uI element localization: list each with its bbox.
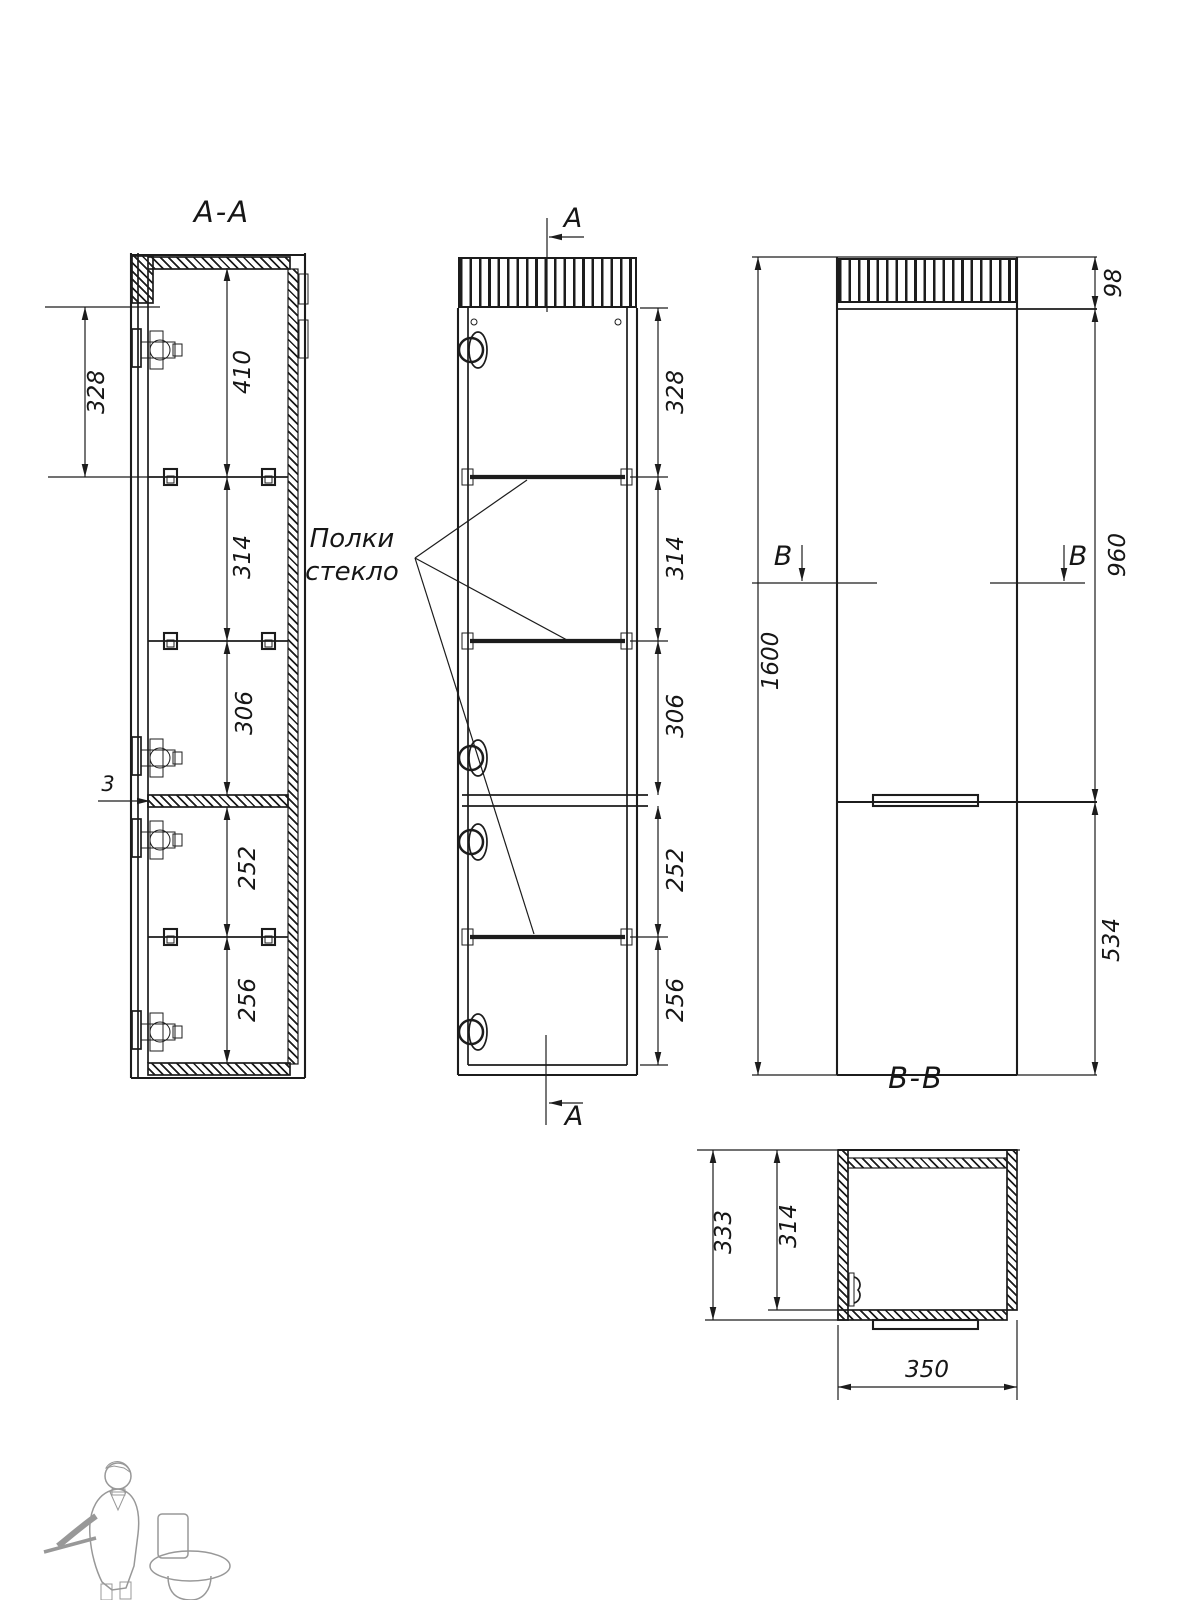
dim-aa-410: 410 <box>229 312 257 432</box>
dim-bb-350: 350 <box>867 1356 987 1384</box>
dim-bb-333: 333 <box>710 1172 738 1292</box>
technical-drawing-cabinet: A-A 328 410 314 306 252 256 3 A A Полки … <box>0 0 1200 1600</box>
dim-bb-314: 314 <box>775 1166 803 1286</box>
marker-b-right: B <box>1058 542 1098 572</box>
label-shelf-gap-3: 3 <box>88 772 128 796</box>
dim-aa-328: 328 <box>83 332 111 452</box>
dim-aa-314: 314 <box>229 497 257 617</box>
side-view <box>752 257 1098 1075</box>
hinge-icon <box>132 737 182 777</box>
dim-front-306: 306 <box>662 656 690 776</box>
hinge-icon <box>132 819 182 859</box>
glass-shelves-note-line1: Полки <box>282 524 422 554</box>
dim-side-534: 534 <box>1098 880 1126 1000</box>
dim-front-256: 256 <box>662 940 690 1060</box>
hinge-icon <box>132 329 182 369</box>
glass-shelves-note-line2: стекло <box>282 557 422 587</box>
dim-aa-306: 306 <box>231 653 259 773</box>
dim-front-252: 252 <box>662 810 690 930</box>
section-bb-title: B-B <box>846 1062 986 1094</box>
door-handle-section <box>873 1320 978 1329</box>
door-handle <box>873 795 978 806</box>
dim-aa-256: 256 <box>234 940 262 1060</box>
hinge-icon <box>132 1011 182 1051</box>
section-aa-title: A-A <box>152 196 292 228</box>
front-view <box>415 218 668 1125</box>
marker-a-top: A <box>553 204 593 234</box>
dim-side-960: 960 <box>1104 495 1132 615</box>
dim-aa-252: 252 <box>234 808 262 928</box>
dim-front-314: 314 <box>662 498 690 618</box>
drawing-linework <box>0 0 1200 1600</box>
watermark-plumber-logo <box>44 1462 230 1600</box>
marker-a-bottom: A <box>554 1102 594 1132</box>
dim-side-98: 98 <box>1100 223 1128 343</box>
dim-side-1600: 1600 <box>757 601 785 721</box>
marker-b-left: B <box>763 542 803 572</box>
dim-front-328: 328 <box>662 332 690 452</box>
